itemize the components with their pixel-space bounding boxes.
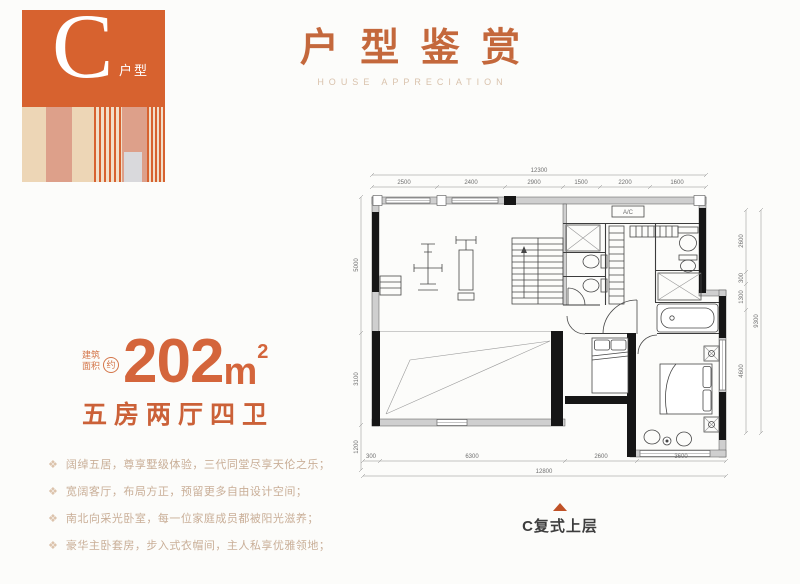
dim-label: 1500 [574, 180, 588, 186]
wardrobes [609, 206, 678, 304]
plan-caption: C复式上层 [495, 503, 625, 536]
feature-item: ❖豪华主卧套房，步入式衣帽间，主人私享优雅领地； [48, 539, 348, 554]
feature-text: 豪华主卧套房，步入式衣帽间，主人私享优雅领地； [66, 539, 331, 554]
area-value: 202 [123, 336, 223, 389]
dim-label: 2600 [739, 234, 745, 248]
area-prefix: 建筑 面积 [82, 350, 100, 373]
dim-label: 1600 [670, 180, 684, 186]
stripe-band [72, 107, 94, 182]
unit-letter: C [52, 0, 113, 95]
page-title: 户型鉴赏 [235, 26, 585, 73]
page-subtitle: HOUSE APPRECIATION [235, 77, 585, 87]
area-row: 建筑 面积 约 202 m2 [82, 336, 312, 389]
plan-caption-text: C复式上层 [495, 515, 625, 536]
diamond-bullet-icon: ❖ [48, 485, 58, 500]
bedroom-furniture [592, 338, 719, 446]
feature-list: ❖阔绰五居，尊享墅级体验，三代同堂尽享天伦之乐；❖宽阔客厅，布局方正，预留更多自… [48, 458, 348, 566]
feature-item: ❖阔绰五居，尊享墅级体验，三代同堂尽享天伦之乐； [48, 458, 348, 473]
dim-label: 2200 [618, 180, 632, 186]
floorplan-container: 1230025002400290015002200160050003100120… [348, 158, 792, 508]
feature-text: 阔绰五居，尊享墅级体验，三代同堂尽享天伦之乐； [66, 458, 331, 473]
diamond-bullet-icon: ❖ [48, 512, 58, 527]
gym-equipment [380, 236, 476, 300]
badge-stripe-pattern [22, 107, 165, 182]
diamond-bullet-icon: ❖ [48, 458, 58, 473]
dim-label: 2600 [594, 454, 608, 460]
diamond-bullet-icon: ❖ [48, 539, 58, 554]
dim-label: 3100 [354, 372, 360, 386]
flyer-page: C 户型 户型鉴赏 HOUSE APPRECIATION 建筑 面积 约 202… [0, 0, 800, 584]
dim-label: 3600 [674, 454, 688, 460]
area-prefix-line2: 面积 [82, 361, 100, 372]
unit-badge: C 户型 [22, 10, 165, 182]
area-block: 建筑 面积 约 202 m2 五房两厅四卫 [82, 336, 312, 431]
void-diagonals [386, 341, 550, 414]
dim-label: 4600 [739, 364, 745, 378]
stripe-band [94, 107, 122, 182]
dim-label: 9300 [754, 314, 760, 328]
dim-label: 5000 [354, 258, 360, 272]
dim-label: 2900 [527, 180, 541, 186]
bathroom-fixtures [566, 225, 718, 332]
dim-label: 2400 [464, 180, 478, 186]
staircase [512, 238, 563, 304]
triangle-marker-icon [553, 503, 567, 511]
dim-label: A/C [623, 210, 634, 216]
area-unit-letter: m [223, 351, 257, 393]
dim-label: 300 [366, 454, 377, 460]
dim-label: 2500 [397, 180, 411, 186]
feature-item: ❖宽阔客厅，布局方正，预留更多自由设计空间； [48, 485, 348, 500]
page-header: 户型鉴赏 HOUSE APPRECIATION [235, 26, 585, 87]
dim-label: 1300 [739, 290, 745, 304]
dim-label: 1200 [354, 440, 360, 454]
dim-label: 12300 [531, 168, 548, 174]
area-prefix-line1: 建筑 [82, 350, 100, 361]
floorplan-drawing: 1230025002400290015002200160050003100120… [348, 158, 792, 508]
shelf [380, 276, 401, 295]
stripe-band [122, 107, 147, 182]
stripe-band [147, 107, 165, 182]
unit-badge-header: C 户型 [22, 10, 165, 107]
feature-text: 南北向采光卧室，每一位家庭成员都被阳光滋养； [66, 512, 319, 527]
stripe-band [124, 152, 142, 182]
stripe-band [46, 107, 72, 182]
dim-label: 6300 [465, 454, 479, 460]
unit-label: 户型 [119, 60, 149, 79]
feature-item: ❖南北向采光卧室，每一位家庭成员都被阳光滋养； [48, 512, 348, 527]
feature-text: 宽阔客厅，布局方正，预留更多自由设计空间； [66, 485, 308, 500]
dim-label: 12800 [536, 469, 553, 475]
stripe-band [22, 107, 46, 182]
area-unit-sup: 2 [257, 341, 268, 363]
approx-circle: 约 [103, 357, 119, 373]
room-configuration: 五房两厅四卫 [82, 395, 312, 431]
area-unit: m2 [223, 343, 268, 389]
dim-label: 300 [739, 272, 745, 283]
